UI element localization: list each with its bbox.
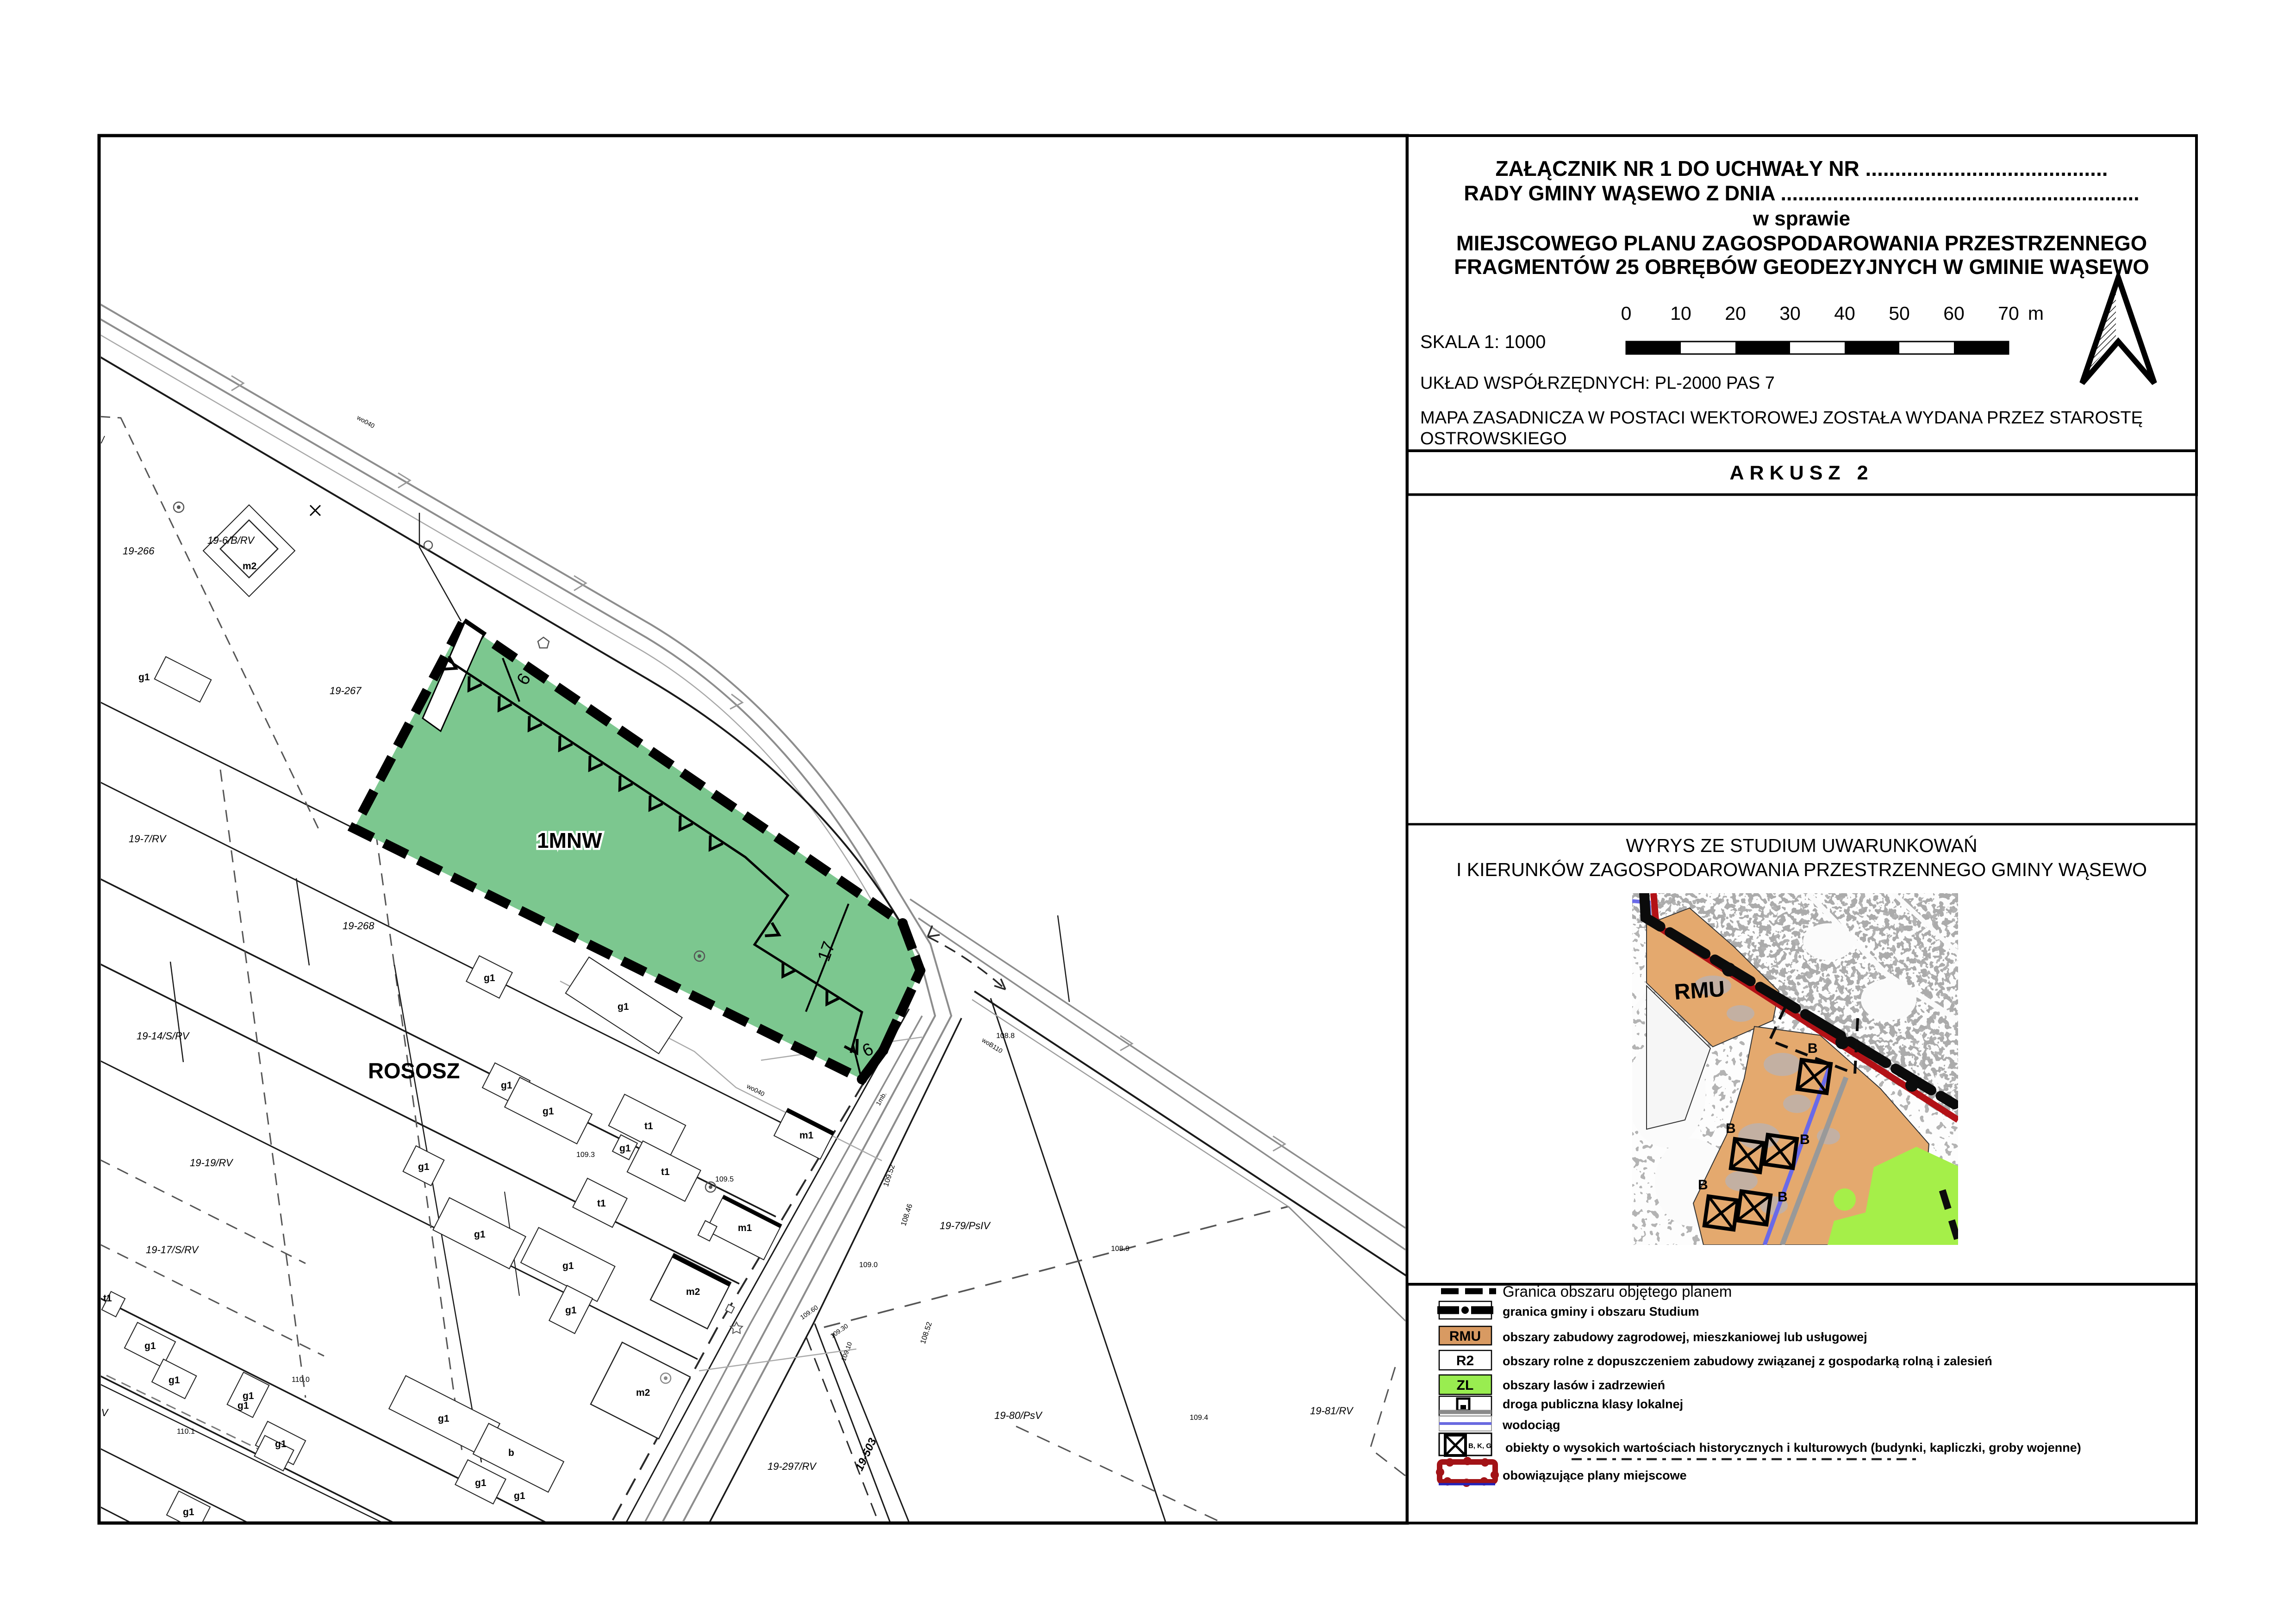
svg-text:109.3: 109.3: [576, 1151, 595, 1159]
svg-text:109.5: 109.5: [715, 1175, 734, 1183]
svg-text:g1: g1: [237, 1400, 249, 1411]
svg-text:109.0: 109.0: [859, 1261, 878, 1269]
svg-text:g1: g1: [474, 1229, 486, 1240]
svg-text:19-79/PsIV: 19-79/PsIV: [940, 1220, 991, 1231]
svg-text:m2: m2: [686, 1287, 700, 1297]
svg-text:70: 70: [1998, 303, 2019, 324]
svg-text:I KIERUNKÓW ZAGOSPODAROWANIA P: I KIERUNKÓW ZAGOSPODAROWANIA PRZESTRZENN…: [1456, 859, 2147, 880]
svg-text:ROSOSZ: ROSOSZ: [368, 1058, 460, 1083]
svg-text:19-268: 19-268: [343, 920, 374, 932]
svg-text:g1: g1: [543, 1106, 554, 1117]
svg-text:g1: g1: [565, 1305, 577, 1316]
svg-text:RMU: RMU: [1449, 1329, 1481, 1344]
svg-text:40: 40: [1834, 303, 1855, 324]
svg-text:g1: g1: [562, 1261, 574, 1271]
svg-text:g1: g1: [144, 1341, 156, 1351]
svg-text:SKALA 1: 1000: SKALA 1: 1000: [1420, 332, 1546, 352]
svg-text:m1: m1: [799, 1130, 814, 1141]
svg-text:19-19/RV: 19-19/RV: [190, 1157, 234, 1169]
svg-text:19-6/B/RV: 19-6/B/RV: [207, 535, 255, 546]
svg-text:wodociąg: wodociąg: [1502, 1418, 1560, 1432]
svg-text:B: B: [1698, 1177, 1708, 1193]
svg-text:B: B: [1808, 1041, 1818, 1056]
svg-text:obiekty o wysokich wartościach: obiekty o wysokich wartościach historycz…: [1505, 1441, 2081, 1455]
svg-text:g1: g1: [514, 1491, 525, 1501]
svg-text:obszary lasów i zadrzewień: obszary lasów i zadrzewień: [1503, 1378, 1665, 1392]
svg-text:t1: t1: [644, 1121, 653, 1132]
svg-text:granica gminy i obszaru Studiu: granica gminy i obszaru Studium: [1503, 1305, 1699, 1318]
svg-text:30: 30: [1779, 303, 1801, 324]
svg-text:g1: g1: [275, 1439, 287, 1449]
svg-text:19-297/RV: 19-297/RV: [767, 1461, 817, 1472]
svg-text:droga publiczna klasy lokalnej: droga publiczna klasy lokalnej: [1503, 1397, 1683, 1411]
svg-text:OSTROWSKIEGO: OSTROWSKIEGO: [1420, 429, 1567, 448]
svg-text:ZAŁĄCZNIK NR 1 DO UCHWAŁY NR .: ZAŁĄCZNIK NR 1 DO UCHWAŁY NR ...........…: [1495, 156, 2108, 180]
svg-text:obszary zabudowy zagrodowej, m: obszary zabudowy zagrodowej, mieszkaniow…: [1503, 1330, 1867, 1344]
svg-text:MIEJSCOWEGO PLANU ZAGOSPODAROW: MIEJSCOWEGO PLANU ZAGOSPODAROWANIA PRZES…: [1456, 231, 2147, 255]
svg-text:ARKUSZ 2: ARKUSZ 2: [1729, 462, 1873, 484]
svg-text:50: 50: [1889, 303, 1910, 324]
svg-text:19-80/PsV: 19-80/PsV: [994, 1410, 1043, 1421]
svg-text:t1: t1: [661, 1167, 670, 1177]
svg-text:g1: g1: [138, 672, 150, 683]
svg-text:ZL: ZL: [1457, 1378, 1474, 1393]
svg-text:g1: g1: [619, 1143, 631, 1154]
svg-text:B: B: [1726, 1121, 1736, 1136]
svg-text:B, K, G: B, K, G: [1468, 1442, 1491, 1450]
svg-text:B: B: [1778, 1189, 1788, 1205]
svg-text:110.0: 110.0: [292, 1376, 310, 1384]
svg-text:RMU: RMU: [1673, 976, 1726, 1004]
svg-text:108.8: 108.8: [996, 1032, 1015, 1040]
svg-text:g1: g1: [183, 1507, 194, 1517]
svg-text:g1: g1: [618, 1001, 629, 1012]
svg-text:19-14/S/RV: 19-14/S/RV: [137, 1030, 190, 1042]
svg-text:g1: g1: [438, 1413, 449, 1424]
svg-text:t1: t1: [597, 1198, 606, 1209]
svg-text:19-266: 19-266: [123, 545, 155, 557]
svg-text:109.4: 109.4: [1190, 1414, 1208, 1422]
svg-text:19-7/RV: 19-7/RV: [129, 833, 167, 845]
svg-text:R2: R2: [1456, 1353, 1474, 1368]
svg-text:19-17/S/RV: 19-17/S/RV: [146, 1244, 200, 1256]
svg-text:RADY GMINY WĄSEWO Z DNIA .....: RADY GMINY WĄSEWO Z DNIA ...............…: [1464, 181, 2139, 205]
svg-text:g1: g1: [501, 1080, 512, 1091]
svg-text:19-267: 19-267: [330, 685, 362, 696]
svg-text:20: 20: [1725, 303, 1746, 324]
svg-text:t1: t1: [103, 1293, 112, 1304]
svg-text:obowiązujące plany miejscowe: obowiązujące plany miejscowe: [1503, 1468, 1687, 1482]
svg-text:0: 0: [1621, 303, 1632, 324]
svg-text:g1: g1: [418, 1162, 430, 1172]
svg-text:g1: g1: [168, 1375, 180, 1386]
svg-text:19-81/RV: 19-81/RV: [1310, 1405, 1354, 1417]
svg-text:Granica obszaru objętego plane: Granica obszaru objętego planem: [1503, 1283, 1732, 1300]
svg-text:WYRYS ZE STUDIUM UWARUNKOWAŃ: WYRYS ZE STUDIUM UWARUNKOWAŃ: [1626, 835, 1977, 856]
svg-text:110.1: 110.1: [177, 1428, 195, 1436]
svg-text:g1: g1: [475, 1478, 487, 1488]
svg-text:g1: g1: [484, 973, 495, 983]
svg-text:MAPA ZASADNICZA W POSTACI WEKT: MAPA ZASADNICZA W POSTACI WEKTOROWEJ ZOS…: [1420, 408, 2143, 428]
svg-text:g1: g1: [243, 1391, 254, 1401]
svg-text:b: b: [508, 1448, 514, 1458]
svg-text:FRAGMENTÓW 25 OBRĘBÓW GEODEZYJ: FRAGMENTÓW 25 OBRĘBÓW GEODEZYJNYCH W GMI…: [1454, 255, 2149, 279]
svg-text:w sprawie: w sprawie: [1753, 207, 1850, 230]
svg-text:B: B: [1800, 1132, 1810, 1147]
svg-text:60: 60: [1943, 303, 1965, 324]
svg-text:m1: m1: [738, 1223, 752, 1233]
svg-text:m2: m2: [243, 561, 256, 572]
svg-text:m2: m2: [636, 1387, 650, 1398]
svg-text:108.9: 108.9: [1111, 1245, 1129, 1253]
svg-text:10: 10: [1670, 303, 1691, 324]
svg-text:m: m: [2028, 303, 2044, 324]
svg-text:obszary rolne z dopuszczeniem: obszary rolne z dopuszczeniem zabudowy z…: [1503, 1354, 1992, 1368]
svg-text:UKŁAD WSPÓŁRZĘDNYCH: PL-2000 P: UKŁAD WSPÓŁRZĘDNYCH: PL-2000 PAS 7: [1420, 373, 1775, 393]
svg-text:1MNW: 1MNW: [537, 828, 602, 852]
